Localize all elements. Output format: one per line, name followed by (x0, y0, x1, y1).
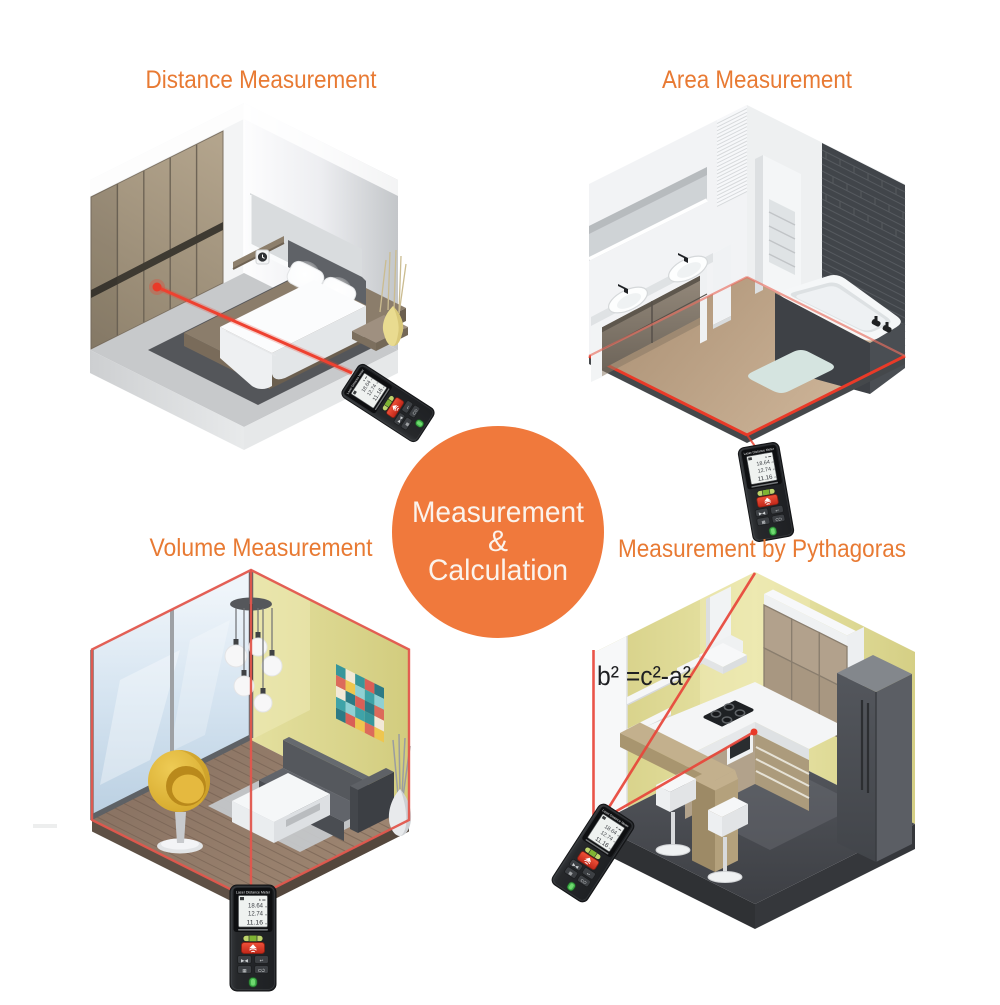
svg-text:Calculation: Calculation (428, 554, 568, 587)
svg-text:Volume Measurement: Volume Measurement (150, 534, 373, 562)
svg-text:Measurement by Pythagoras: Measurement by Pythagoras (618, 535, 906, 563)
svg-text:Area Measurement: Area Measurement (662, 66, 852, 94)
svg-text:b² =c²-a²: b² =c²-a² (597, 661, 691, 691)
svg-text:Distance Measurement: Distance Measurement (146, 66, 377, 94)
